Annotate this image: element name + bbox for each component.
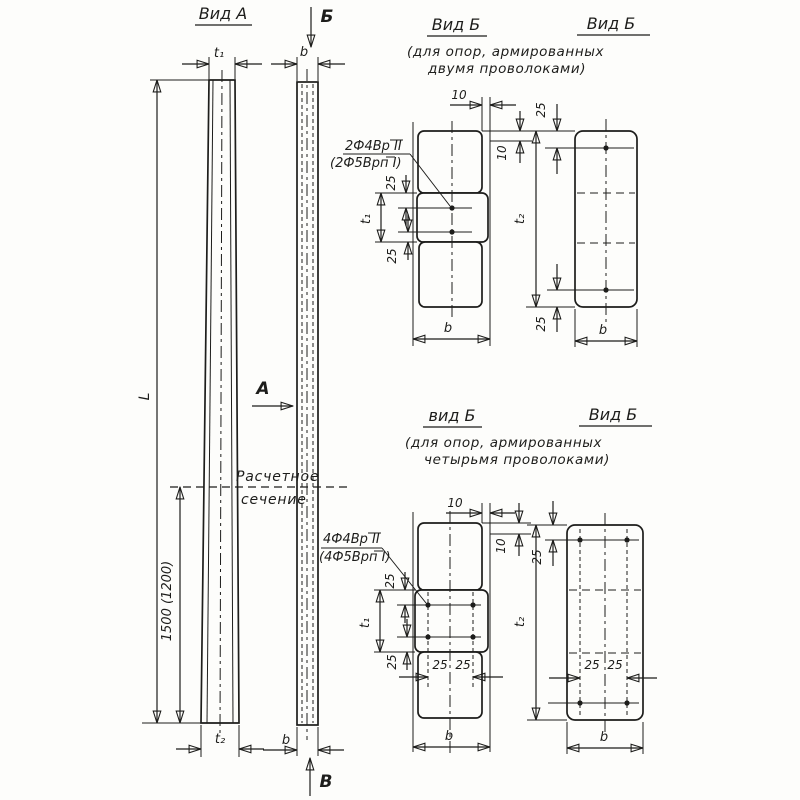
- dim-label-10: 10: [451, 88, 467, 102]
- wire-dot: [624, 537, 629, 542]
- section-title: Вид Б: [589, 405, 638, 424]
- pole-mid-block: [415, 590, 488, 652]
- section-a-marker: А: [254, 379, 269, 399]
- section-title: Вид Б: [432, 15, 481, 34]
- wire-dot: [425, 602, 430, 607]
- two-wire-titles: Вид Б (для опор, армированных двумя пров…: [407, 14, 650, 77]
- dim-label-t2: t₂: [513, 214, 528, 224]
- section-subtitle-2: двумя проволоками): [427, 61, 586, 77]
- dim-label-25: 25: [383, 573, 397, 588]
- dim-label-25: 25: [385, 654, 399, 669]
- section-subtitle-1: (для опор, армированных: [407, 44, 605, 60]
- view-v-marker: В: [320, 772, 333, 792]
- dim-label-b: b: [599, 323, 607, 338]
- dim-label-b: b: [282, 733, 290, 748]
- technical-drawing: Вид А t₁ L 1500 (1200) Расчетное сечение…: [0, 0, 800, 800]
- wire-line-right: [230, 80, 233, 723]
- wire-dot: [449, 229, 454, 234]
- dim-label-10: 10: [447, 496, 463, 510]
- dim-label-10: 10: [494, 538, 508, 554]
- view-b-marker: Б: [321, 7, 334, 27]
- dim-label-25: 25: [455, 658, 470, 672]
- wire-dot: [470, 634, 475, 639]
- wire-dot: [470, 602, 475, 607]
- dim-label-b: b: [600, 730, 608, 745]
- pole-top-block: [418, 523, 482, 590]
- dim-label-25: 25: [530, 549, 544, 564]
- front-view-pole: Вид А t₁ L 1500 (1200) Расчетное сечение…: [137, 4, 348, 757]
- dim-label-t2: t₂: [513, 617, 528, 627]
- dim-label-b: b: [445, 729, 453, 744]
- wire-dot: [577, 537, 582, 542]
- drawing-sheet: Вид А t₁ L 1500 (1200) Расчетное сечение…: [0, 0, 800, 800]
- dim-label-25: 25: [384, 175, 398, 190]
- section-two-wire-left: 10 10 t₁ 25 25 2Ф4Вр II (2Ф5Врп I): [330, 88, 532, 346]
- pole-bottom-block: [419, 242, 482, 307]
- wire-dot: [425, 634, 430, 639]
- dim-label-L: L: [137, 392, 153, 401]
- dim-label-25: 25: [534, 316, 548, 331]
- wire-dot: [577, 700, 582, 705]
- section-subtitle-1: (для опор, армированных: [405, 435, 603, 451]
- dim-label-25: 25: [607, 658, 622, 672]
- side-view-pole: Б b А b В: [252, 7, 345, 796]
- section-four-wire-right: 25 t₂ 25 25 b: [513, 501, 657, 754]
- wire-dot: [603, 287, 608, 292]
- four-wire-titles: вид Б (для опор, армированных четырьмя п…: [405, 405, 652, 468]
- pole-top-block: [418, 131, 482, 193]
- rebar-label-2: (4Ф5Врп I): [319, 550, 391, 565]
- dim-label-t2: t₂: [215, 732, 225, 747]
- wire-dot: [449, 205, 454, 210]
- section-subtitle-2: четырьмя проволоками): [424, 452, 610, 468]
- rebar-label-2: (2Ф5Врп I): [330, 156, 402, 171]
- dim-label-1500: 1500 (1200): [160, 561, 175, 641]
- dim-label-b: b: [300, 45, 308, 60]
- rebar-label-1: 4Ф4Вр II: [323, 532, 380, 547]
- section-title: вид Б: [429, 406, 476, 425]
- section-four-wire-left: 10 10 t₁ 25 25 25 25: [319, 496, 531, 757]
- dim-label-b: b: [444, 321, 452, 336]
- section-title: Вид Б: [587, 14, 636, 33]
- dim-label-t1: t₁: [358, 618, 373, 628]
- view-a-title: Вид А: [199, 4, 247, 23]
- dim-label-25: 25: [534, 102, 548, 117]
- section-two-wire-right: t₂ 25 25 b: [513, 102, 637, 347]
- wire-dot: [603, 145, 608, 150]
- dim-label-25: 25: [385, 248, 399, 263]
- dim-label-10: 10: [495, 145, 509, 161]
- dim-label-t1: t₁: [214, 46, 224, 61]
- wire-dot: [624, 700, 629, 705]
- pole-axis: [220, 70, 222, 734]
- dim-label-25: 25: [432, 658, 447, 672]
- rebar-label-1: 2Ф4Вр II: [345, 139, 402, 154]
- dim-label-25: 25: [584, 658, 599, 672]
- dim-label-t1: t₁: [359, 214, 374, 224]
